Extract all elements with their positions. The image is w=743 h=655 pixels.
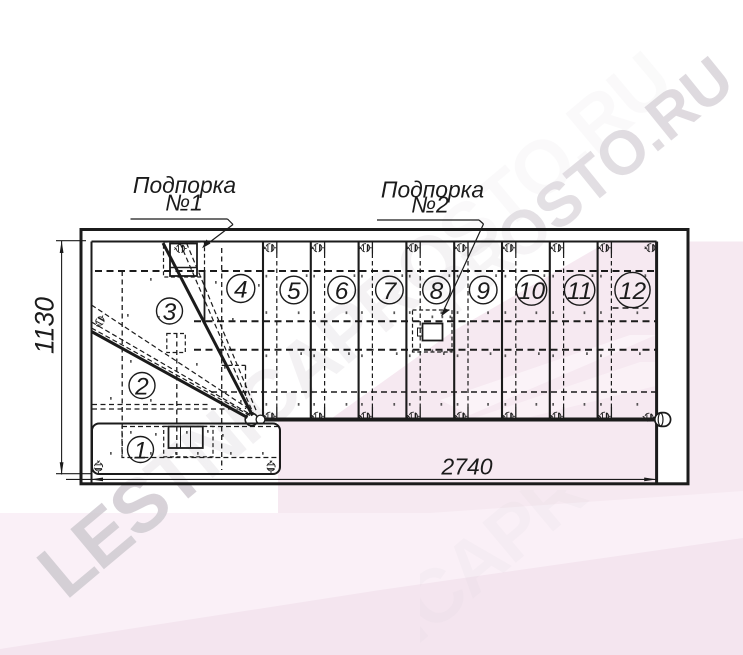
svg-text:№1: №1 — [165, 190, 203, 216]
svg-text:4: 4 — [234, 276, 248, 303]
svg-text:8: 8 — [430, 278, 444, 305]
svg-text:12: 12 — [619, 278, 647, 305]
svg-text:2740: 2740 — [440, 453, 492, 479]
svg-text:7: 7 — [383, 278, 398, 305]
svg-text:3: 3 — [163, 299, 177, 326]
svg-text:11: 11 — [567, 278, 592, 305]
svg-text:1: 1 — [134, 437, 148, 464]
svg-text:9: 9 — [476, 278, 490, 305]
svg-text:№2: №2 — [411, 192, 449, 218]
svg-text:6: 6 — [335, 278, 349, 305]
svg-text:2: 2 — [134, 373, 149, 400]
svg-text:1130: 1130 — [30, 297, 60, 354]
svg-text:10: 10 — [518, 278, 546, 305]
svg-text:5: 5 — [287, 278, 301, 305]
